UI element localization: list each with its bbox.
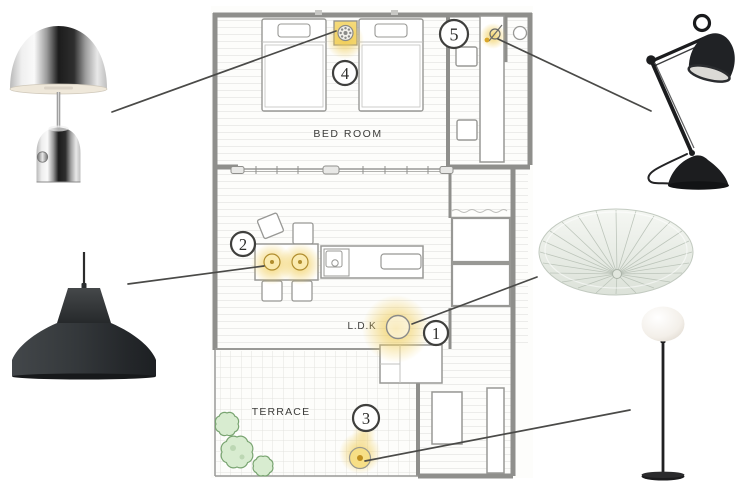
marker-1: 1 xyxy=(424,321,448,345)
marker-3: 3 xyxy=(353,405,379,431)
marker-4-number: 4 xyxy=(341,64,349,83)
wc-fixture xyxy=(514,27,527,40)
floor-light-symbol-3 xyxy=(350,448,371,469)
bed-right xyxy=(359,19,423,111)
ceiling-lamp-center-knob xyxy=(613,270,622,279)
marker-4: 4 xyxy=(333,61,357,85)
table-lamp-stem xyxy=(57,92,60,128)
shoe-cabinet xyxy=(487,388,504,473)
marker-1-number: 1 xyxy=(432,324,440,343)
floor-lamp-pole xyxy=(662,338,665,476)
cabinet xyxy=(432,392,462,444)
marker-2: 2 xyxy=(231,232,255,256)
window-handle xyxy=(323,166,339,174)
desk-lamp-lower-arm xyxy=(651,60,691,151)
pillow xyxy=(278,24,310,37)
desk-lamp-base xyxy=(668,155,729,185)
product-black-pendant-lamp-image xyxy=(12,252,156,380)
terrace-label: TERRACE xyxy=(252,406,311,418)
desk-lamp-hook xyxy=(695,16,710,31)
marker-5: 5 xyxy=(440,20,468,48)
figure-canvas: BED ROOM L.D.K TERRACE xyxy=(0,0,750,500)
window-handle xyxy=(440,167,453,174)
table-lamp-dome-shade xyxy=(10,26,107,89)
faucet xyxy=(332,260,338,266)
window-handle xyxy=(231,167,244,174)
ceiling-light-symbol-1 xyxy=(387,316,410,339)
pendant-neck xyxy=(57,288,111,323)
floor-lamp-globe xyxy=(642,307,685,342)
desk-lamp-shade xyxy=(686,28,741,85)
marker-3-number: 3 xyxy=(362,409,370,428)
lighting-plan-figure: BED ROOM L.D.K TERRACE xyxy=(0,0,750,500)
product-globe-floor-lamp-image xyxy=(642,307,685,481)
marker-5-number: 5 xyxy=(450,25,459,45)
washroom xyxy=(452,264,510,306)
marker-2-number: 2 xyxy=(239,235,247,254)
product-black-desk-lamp-image xyxy=(646,16,741,190)
table-lamp-switch-knob xyxy=(37,152,47,162)
pendant-shade xyxy=(12,323,156,363)
kitchen-counter xyxy=(321,246,423,278)
bush xyxy=(215,412,238,435)
bedroom-label: BED ROOM xyxy=(313,128,382,140)
bed-left xyxy=(262,19,326,111)
wall-notch xyxy=(315,10,322,15)
product-pleated-ceiling-lamp-image xyxy=(539,209,693,295)
bush xyxy=(253,456,273,476)
wall-notch xyxy=(391,10,398,15)
cooktop xyxy=(381,254,421,269)
ceiling-light-symbol-4 xyxy=(338,26,353,41)
dining-chair xyxy=(293,223,313,244)
pillow xyxy=(375,24,407,37)
product-chrome-table-lamp-image xyxy=(10,26,107,182)
stool xyxy=(457,120,477,140)
stool xyxy=(456,47,477,66)
bathroom xyxy=(452,218,510,262)
